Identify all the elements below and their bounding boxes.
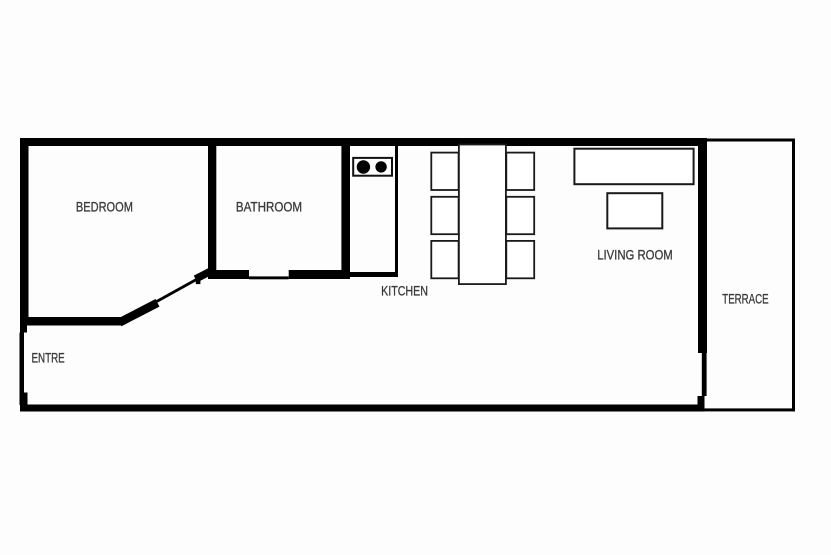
svg-text:TERRACE: TERRACE xyxy=(722,291,768,306)
svg-text:LIVING ROOM: LIVING ROOM xyxy=(597,248,673,263)
svg-text:BATHROOM: BATHROOM xyxy=(236,200,302,215)
svg-text:KITCHEN: KITCHEN xyxy=(381,283,428,298)
svg-text:ENTRE: ENTRE xyxy=(32,350,65,365)
svg-text:BEDROOM: BEDROOM xyxy=(76,199,133,214)
